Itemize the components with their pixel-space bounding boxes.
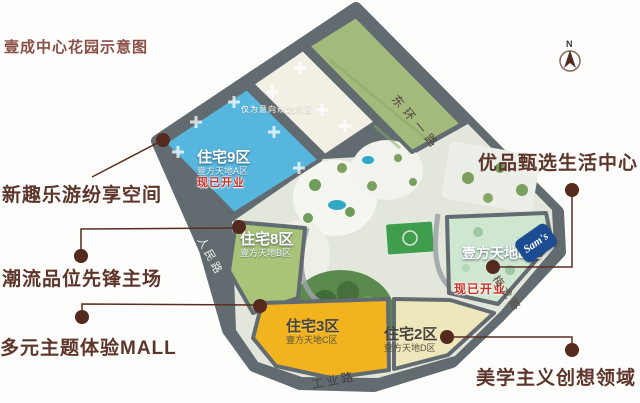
page-title: 壹成中心花园示意图 (4, 36, 148, 57)
zone-3-label: 住宅3区 壹方天地C区 (286, 318, 339, 346)
zone-2-subtitle: 壹方天地D区 (384, 343, 437, 353)
callout-right-1: 优品甄选生活中心 (478, 148, 638, 175)
pool (362, 156, 374, 164)
zone-8-subtitle: 壹方天地B区 (240, 248, 293, 258)
zone-9-status-badge: 现已开业 (197, 177, 250, 190)
zone-9-subtitle: 壹方天地A区 (197, 166, 250, 176)
zone-3-name: 住宅3区 (286, 318, 339, 335)
zone-3-subtitle: 壹方天地C区 (286, 335, 339, 345)
compass-icon (560, 50, 580, 71)
planning-note: 仅为意向规划示意 (241, 104, 313, 115)
zone-8-label: 住宅8区 壹方天地B区 (240, 231, 293, 259)
site-plan-screenshot: 壹成中心花园示意图 新趣乐游纷享空间 潮流品位先锋主场 多元主题体验MALL 优… (0, 0, 640, 403)
pool (328, 200, 346, 210)
zone-8-name: 住宅8区 (240, 231, 293, 248)
callout-left-1: 新趣乐游纷享空间 (2, 180, 162, 207)
compass-north-label: N (566, 39, 573, 49)
callout-right-2: 美学主义创想领域 (476, 363, 636, 390)
sports-field (385, 220, 435, 255)
zone-9-name: 住宅9区 (197, 149, 250, 166)
callout-left-2: 潮流品位先锋主场 (2, 264, 162, 291)
zone-9-label: 住宅9区 壹方天地A区 现已开业 (197, 149, 250, 189)
zone-2-label: 住宅2区 壹方天地D区 (384, 326, 437, 354)
callout-left-3: 多元主题体验MALL (0, 333, 177, 360)
zone-2-name: 住宅2区 (384, 326, 437, 343)
